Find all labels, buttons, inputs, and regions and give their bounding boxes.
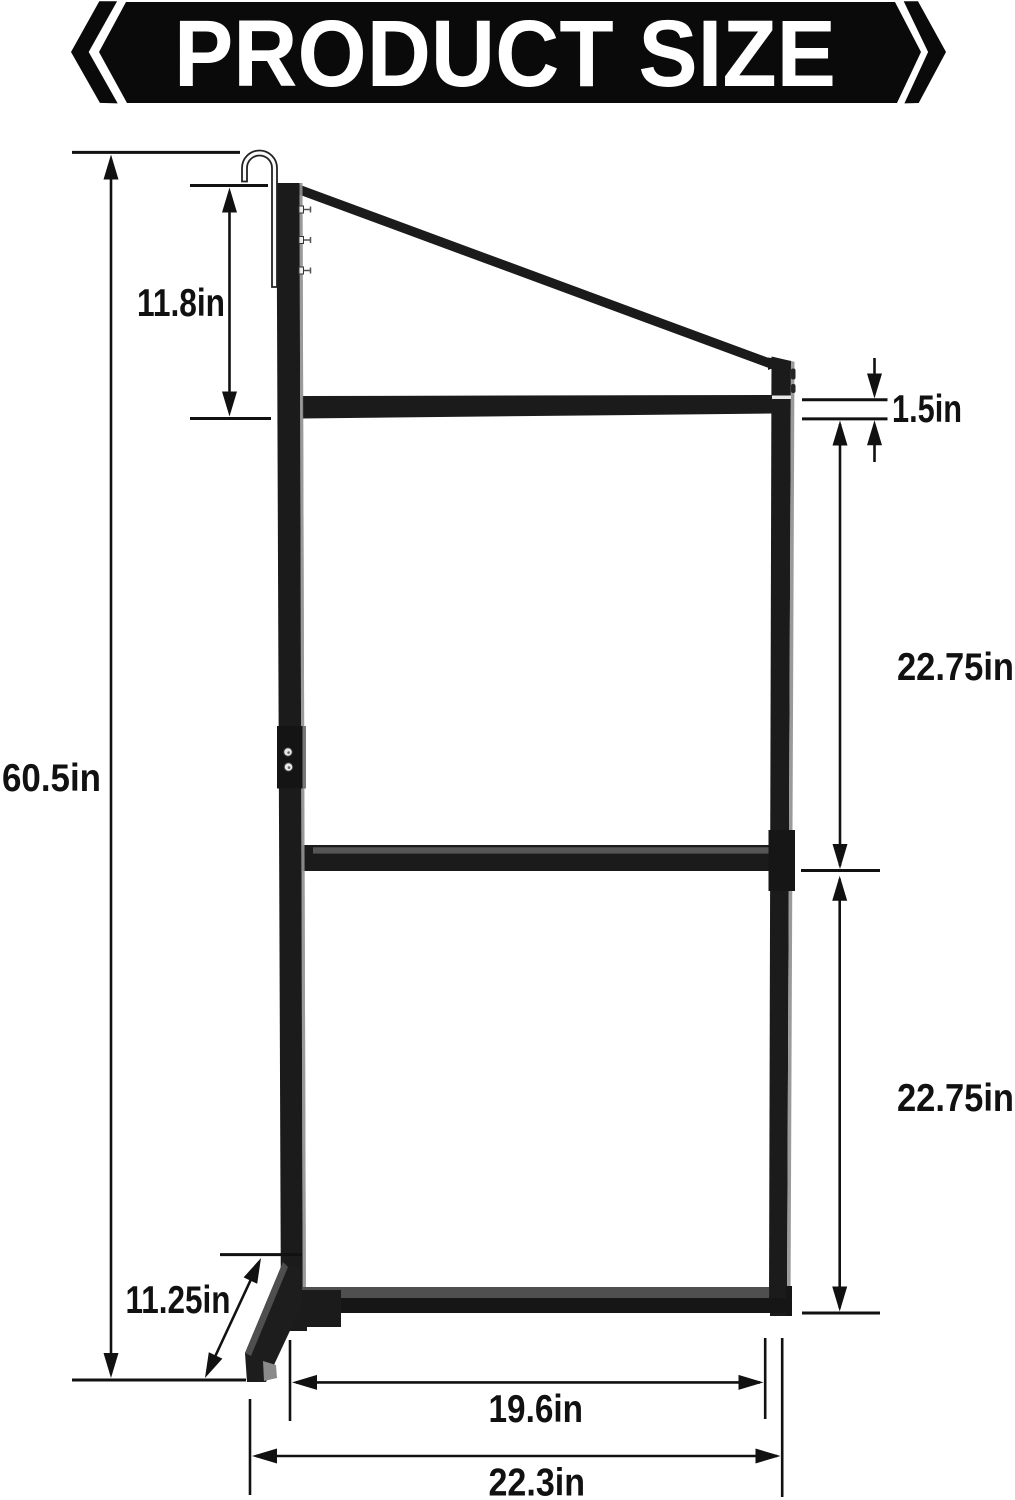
svg-text:11.25in: 11.25in (126, 1279, 231, 1322)
svg-text:22.3in: 22.3in (489, 1462, 586, 1500)
svg-text:PRODUCT SIZE: PRODUCT SIZE (174, 1, 836, 107)
svg-text:22.75in: 22.75in (897, 646, 1014, 689)
svg-text:19.6in: 19.6in (489, 1388, 584, 1431)
svg-text:22.75in: 22.75in (897, 1077, 1014, 1120)
svg-text:1.5in: 1.5in (892, 388, 962, 431)
svg-text:11.8in: 11.8in (137, 282, 225, 325)
svg-text:60.5in: 60.5in (2, 757, 101, 800)
